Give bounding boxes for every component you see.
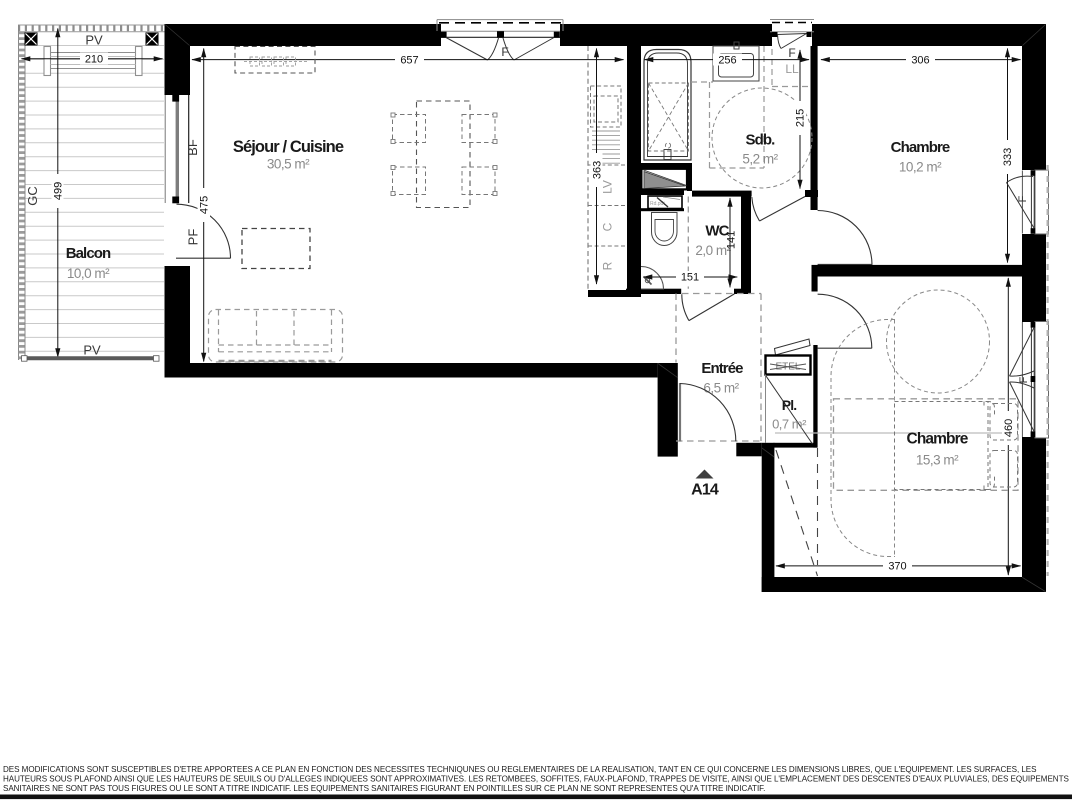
svg-text:R: R <box>601 261 615 270</box>
svg-text:499: 499 <box>53 182 65 200</box>
svg-text:333: 333 <box>1002 148 1014 166</box>
svg-text:306: 306 <box>911 54 929 66</box>
svg-text:SANITAIRES NE SONT PAS TOUS FI: SANITAIRES NE SONT PAS TOUS FIGURES OU L… <box>3 784 765 793</box>
svg-text:Entrée: Entrée <box>701 360 743 377</box>
svg-text:LV: LV <box>601 180 615 194</box>
svg-text:30,5 m²: 30,5 m² <box>267 157 310 172</box>
svg-text:151: 151 <box>681 272 699 284</box>
svg-text:460: 460 <box>1003 419 1015 437</box>
svg-text:Séjour / Cuisine: Séjour / Cuisine <box>233 138 344 156</box>
svg-text:0,7 m²: 0,7 m² <box>772 417 807 432</box>
svg-text:370: 370 <box>888 561 906 573</box>
svg-text:PV: PV <box>85 33 103 48</box>
svg-text:256: 256 <box>718 54 736 66</box>
svg-text:PF: PF <box>186 229 201 246</box>
svg-text:F: F <box>1018 376 1030 383</box>
svg-text:HAUTEURS SOUS PLAFOND AINSI QU: HAUTEURS SOUS PLAFOND AINSI QUE LES HAUT… <box>3 775 1069 784</box>
svg-text:F: F <box>1017 195 1029 202</box>
svg-text:BF: BF <box>185 139 200 156</box>
svg-text:GC: GC <box>25 186 40 206</box>
svg-text:215: 215 <box>795 109 807 127</box>
svg-text:Sdb.: Sdb. <box>746 132 776 149</box>
svg-text:Balcon: Balcon <box>66 245 111 262</box>
svg-text:F: F <box>788 46 795 60</box>
svg-text:F: F <box>501 45 508 59</box>
svg-text:15,3 m²: 15,3 m² <box>916 453 959 468</box>
svg-text:A14: A14 <box>691 482 719 499</box>
svg-text:10,2 m²: 10,2 m² <box>899 160 942 175</box>
svg-text:141: 141 <box>726 231 738 249</box>
svg-text:5,2 m²: 5,2 m² <box>742 152 778 167</box>
svg-text:10,0 m²: 10,0 m² <box>67 266 110 281</box>
svg-text:Chambre: Chambre <box>891 139 950 156</box>
svg-text:LL: LL <box>785 62 799 76</box>
svg-text:657: 657 <box>400 54 418 66</box>
svg-text:C: C <box>601 222 615 231</box>
svg-text:210: 210 <box>85 53 103 65</box>
svg-text:475: 475 <box>199 196 211 214</box>
svg-text:363: 363 <box>592 161 604 179</box>
svg-text:PV: PV <box>83 343 101 358</box>
svg-text:Chambre: Chambre <box>907 431 969 448</box>
svg-text:Pl.: Pl. <box>782 397 796 413</box>
svg-text:DES MODIFICATIONS SONT SUSCEPT: DES MODIFICATIONS SONT SUSCEPTIBLES D'ET… <box>3 765 1037 774</box>
svg-text:6,5 m²: 6,5 m² <box>703 381 739 396</box>
